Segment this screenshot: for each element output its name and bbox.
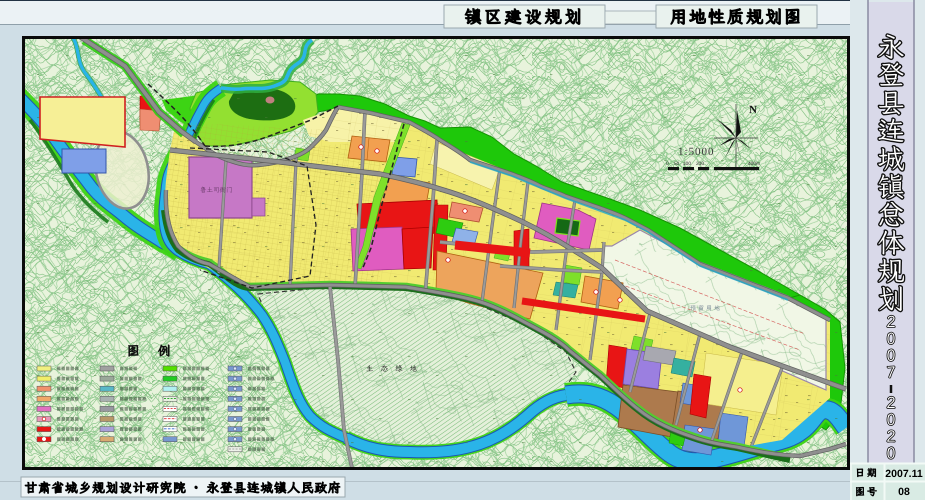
- svg-text:N: N: [749, 104, 757, 116]
- svg-text:08: 08: [898, 486, 910, 498]
- svg-text:50: 50: [674, 161, 680, 167]
- svg-text:200: 200: [696, 161, 704, 167]
- svg-text:2007.11: 2007.11: [885, 468, 923, 480]
- svg-text:0: 0: [666, 161, 669, 167]
- svg-text:400m: 400m: [748, 161, 760, 167]
- svg-text:1:5000: 1:5000: [678, 146, 715, 158]
- svg-text:100: 100: [683, 161, 691, 167]
